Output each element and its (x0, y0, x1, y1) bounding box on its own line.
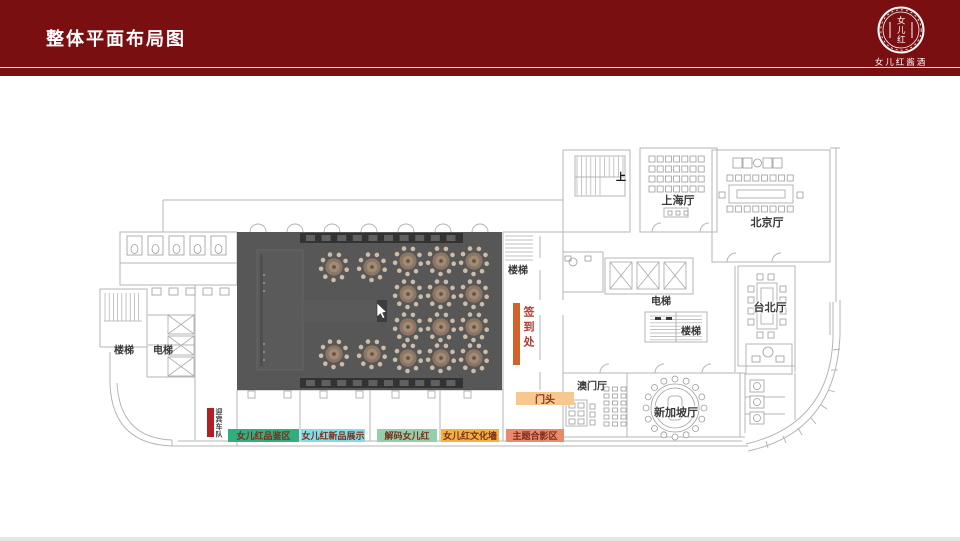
zone-bar-culture-wall: 女儿红文化墙 (441, 429, 499, 442)
stage-runway (303, 300, 385, 322)
floorplan-svg (0, 0, 960, 541)
entrance-bar: 门头 (516, 392, 574, 405)
slide-header: 整体平面布局图 女儿红 女儿红酱酒 (0, 0, 960, 76)
room-label-stairs-mid: 楼梯 (508, 262, 528, 277)
room-label-elevator-left: 电梯 (153, 342, 173, 357)
room-label-shanghai: 上海厅 (662, 192, 695, 208)
zone-bar-new-products: 女儿红新品展示 (301, 429, 365, 442)
checkin-label: 签到处 (522, 306, 533, 351)
room-label-taipei: 台北厅 (754, 299, 787, 315)
header-divider (0, 67, 960, 68)
page-title: 整体平面布局图 (46, 25, 186, 51)
zone-bar-tasting: 女儿红品鉴区 (228, 429, 299, 442)
room-label-macau: 澳门厅 (577, 378, 607, 393)
brand-logo: 女儿红 女儿红酱酒 (872, 5, 930, 68)
brand-name: 女儿红酱酒 (872, 56, 930, 68)
motorcade-label: 迎宾车队 (215, 408, 222, 438)
room-label-singapore: 新加坡厅 (654, 404, 698, 420)
room-label-beijing: 北京厅 (751, 214, 784, 230)
brand-seal-icon: 女儿红 (876, 5, 926, 55)
room-label-stairs-left: 楼梯 (114, 342, 134, 357)
motorcade-bar (207, 408, 214, 437)
room-label-stairs-right: 楼梯 (681, 323, 701, 338)
room-label-elevator-right: 电梯 (651, 293, 671, 308)
checkin-bar (513, 303, 520, 365)
stairs-up-label: 上 (616, 169, 626, 184)
entrance-label: 门头 (535, 391, 555, 406)
brand-seal-text: 女儿红 (876, 5, 926, 55)
zone-bar-photo-area: 主题合影区 (506, 429, 564, 442)
zone-bar-decode: 解码女儿红 (377, 429, 437, 442)
